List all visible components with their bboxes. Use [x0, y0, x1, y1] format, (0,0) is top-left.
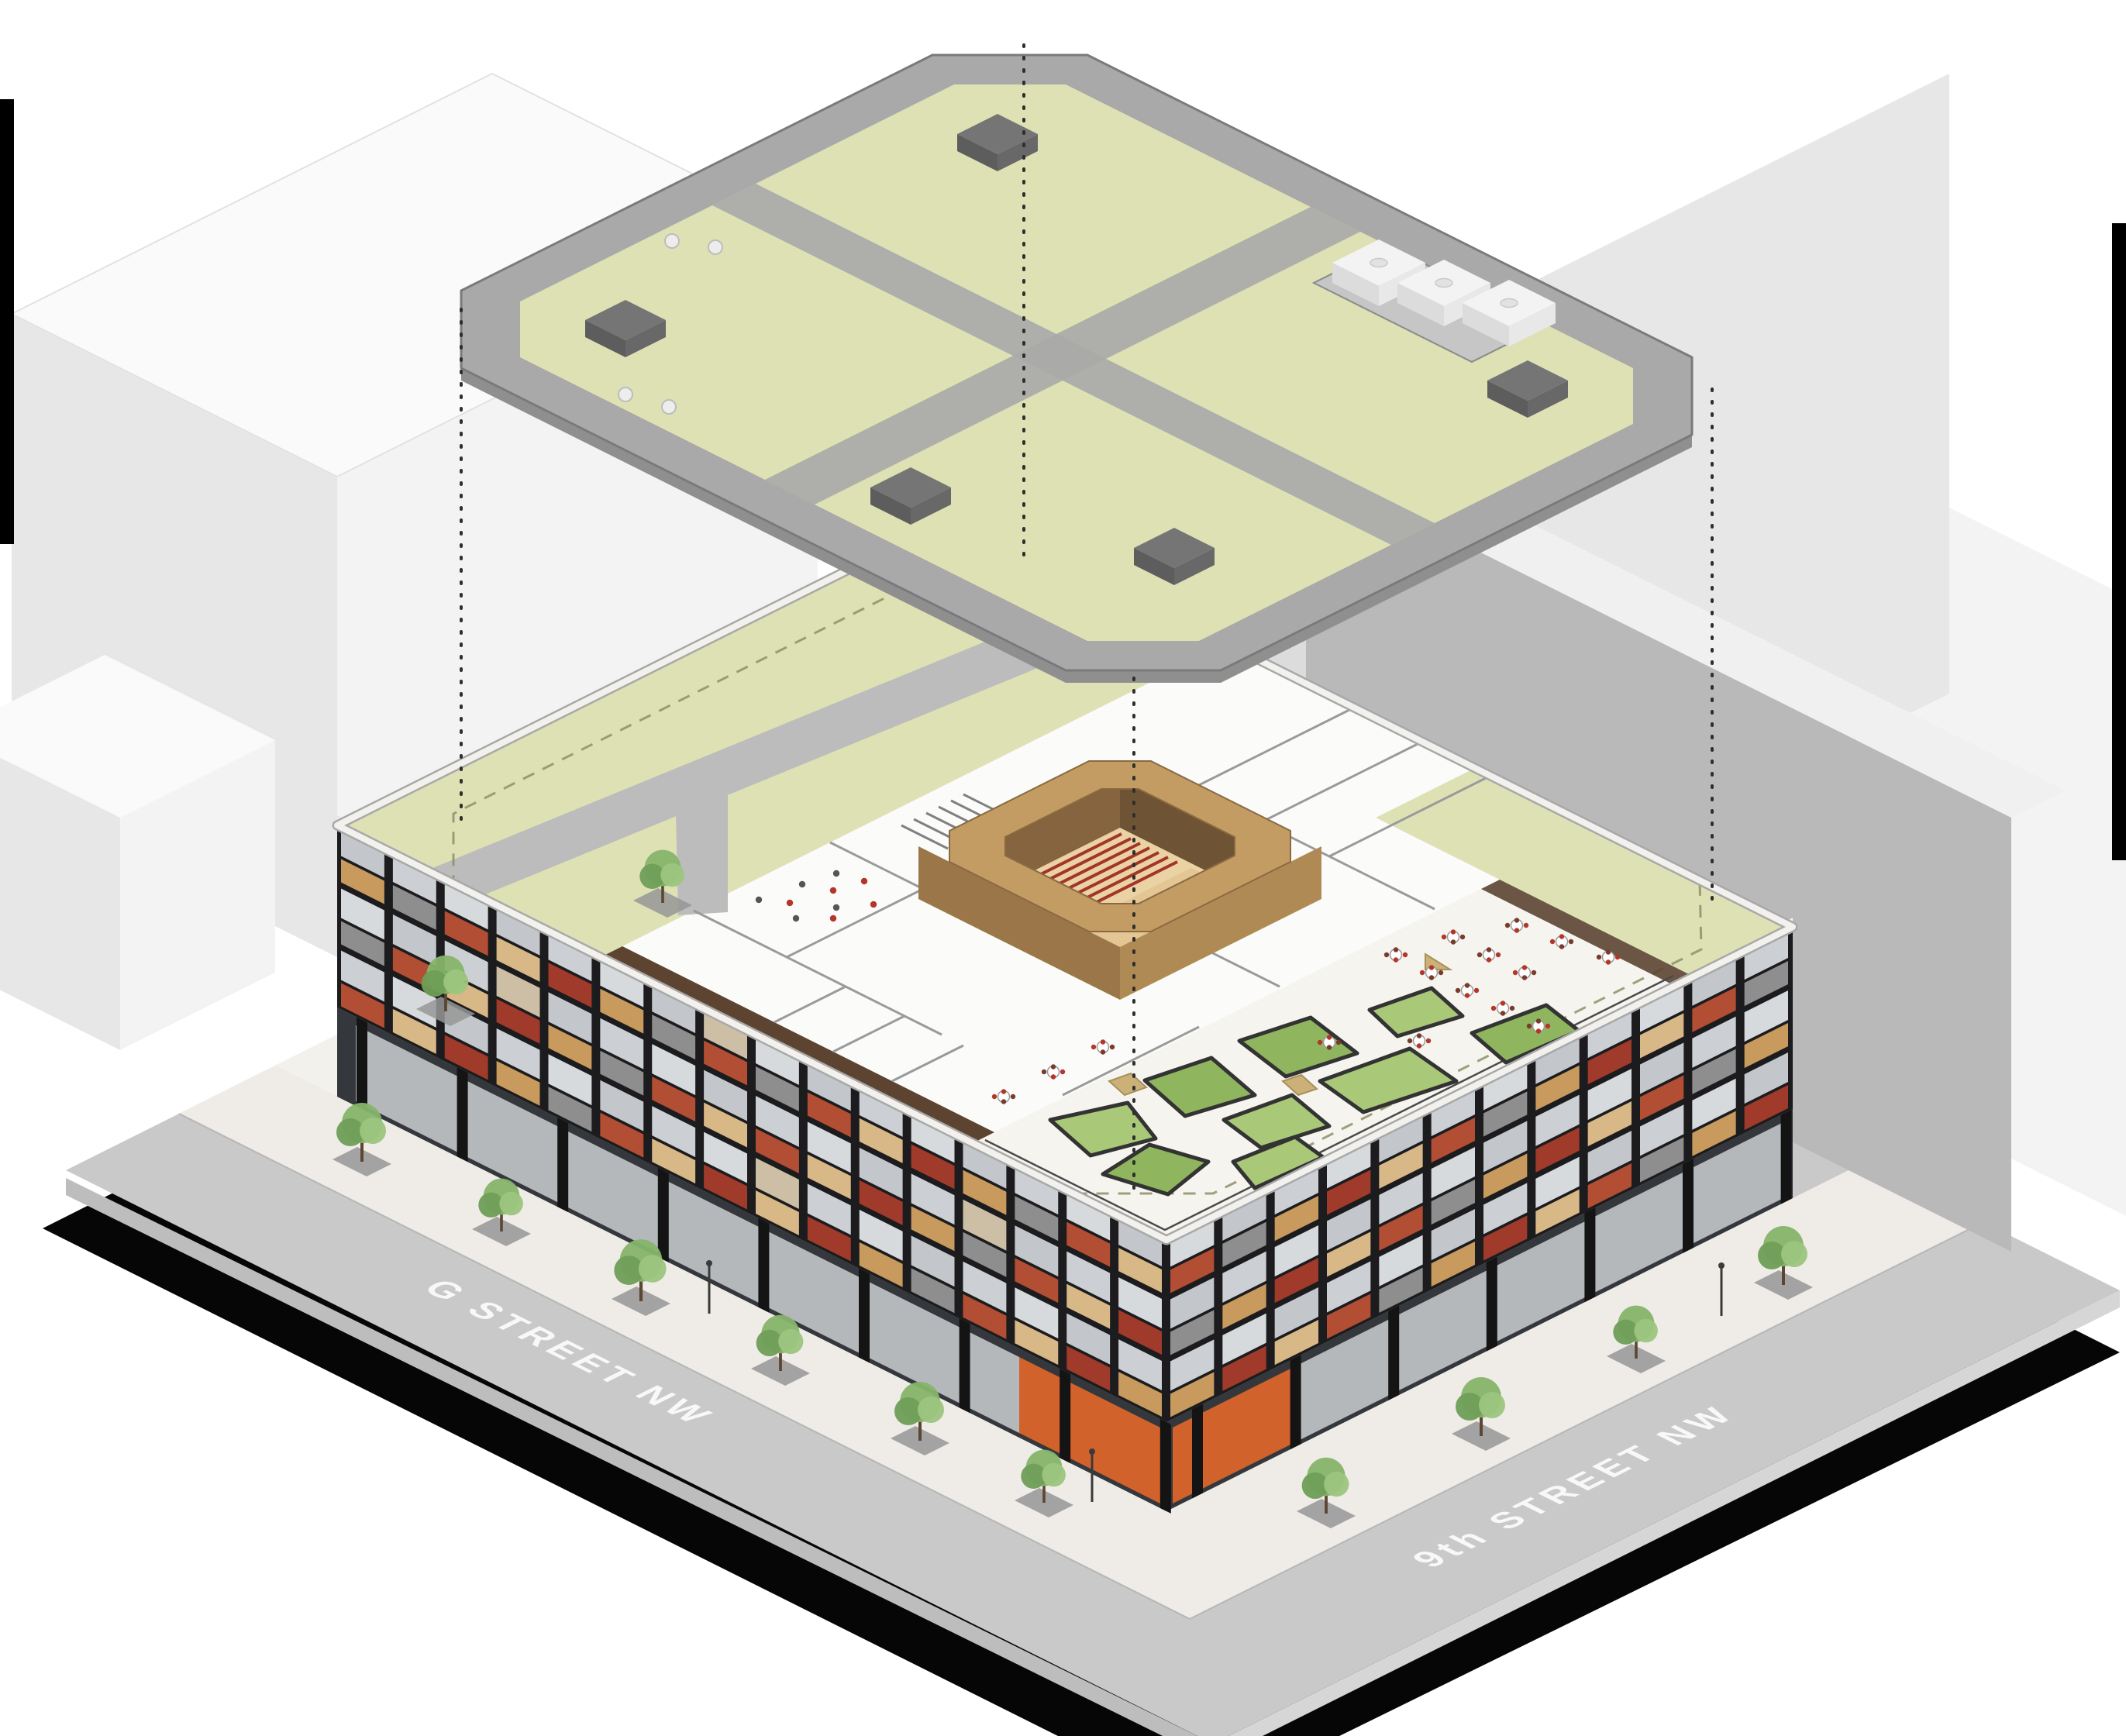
chair-dot [1394, 957, 1398, 962]
chair-dot [1001, 1099, 1006, 1104]
person-dot [830, 887, 836, 894]
chair-dot [1606, 959, 1611, 964]
chair-dot [1091, 1045, 1096, 1049]
person-dot [861, 878, 867, 884]
skylight-circle [665, 234, 679, 248]
skylight-circle [662, 400, 676, 414]
tree-canopy [1324, 1472, 1349, 1497]
pilotis-column [1388, 1306, 1399, 1400]
chair-dot [1477, 952, 1482, 957]
chair-dot [1465, 993, 1470, 997]
tree-canopy [360, 1118, 386, 1144]
tree-canopy [639, 1255, 667, 1283]
chair-dot [1522, 975, 1527, 980]
chair-dot [1417, 1043, 1421, 1048]
lamp-head [706, 1260, 712, 1266]
chair-dot [1060, 1069, 1065, 1074]
chair-dot [1051, 1074, 1056, 1079]
chair-dot [1403, 952, 1408, 957]
chair-dot [1011, 1094, 1015, 1099]
edge-strip-right [2112, 223, 2126, 860]
tree-canopy [1781, 1241, 1807, 1267]
chair-dot [1487, 947, 1491, 952]
person-dot [833, 904, 839, 911]
chair-dot [1442, 935, 1446, 939]
chair-dot [1394, 947, 1398, 952]
pilotis-column [357, 1018, 367, 1112]
chair-dot [1536, 1028, 1541, 1033]
exploded-axonometric-diagram: G STREET NW 9th STREET NW [0, 0, 2126, 1736]
tree-canopy [499, 1192, 523, 1216]
chair-dot [1514, 918, 1519, 922]
chair-dot [1513, 970, 1518, 975]
tree-canopy [778, 1329, 803, 1354]
chair-dot [1597, 955, 1601, 959]
pilotis-column [960, 1318, 970, 1413]
pilotis-column [1584, 1207, 1595, 1302]
chair-dot [1527, 1024, 1532, 1028]
lawn-path-fork [675, 773, 728, 915]
chair-dot [992, 1094, 997, 1099]
person-dot [833, 870, 839, 877]
skylight-circle [619, 387, 632, 401]
pilotis-column [1487, 1257, 1497, 1352]
chair-dot [1451, 929, 1456, 934]
chair-dot [1524, 923, 1528, 928]
chair-dot [1536, 1018, 1541, 1023]
chair-dot [1001, 1089, 1006, 1094]
chair-dot [1474, 988, 1479, 993]
chair-dot [1429, 975, 1434, 980]
skylight-circle [708, 240, 722, 254]
chair-dot [1439, 970, 1443, 975]
pilotis-column [1781, 1110, 1792, 1204]
pilotis-column [457, 1067, 468, 1162]
chair-dot [1451, 939, 1456, 944]
chair-dot [1522, 965, 1527, 970]
chair-dot [1460, 935, 1465, 939]
chair-dot [1417, 1033, 1421, 1038]
person-dot [799, 881, 805, 887]
chair-dot [1532, 970, 1536, 975]
chair-dot [1051, 1064, 1056, 1069]
tree-canopy [918, 1397, 944, 1423]
chair-dot [1545, 1024, 1550, 1028]
pilotis-column [1192, 1404, 1203, 1499]
chair-dot [1559, 934, 1564, 939]
chair-dot [1336, 1040, 1341, 1045]
lamp-head [1089, 1448, 1095, 1455]
chair-dot [1615, 955, 1620, 959]
pilotis-column [1290, 1355, 1301, 1449]
chair-dot [1110, 1045, 1115, 1049]
pilotis-column [658, 1168, 669, 1262]
chair-dot [1042, 1069, 1046, 1074]
person-dot [756, 897, 762, 903]
chair-dot [1514, 928, 1519, 932]
chair-dot [1456, 988, 1460, 993]
chair-dot [1501, 1011, 1505, 1015]
tree-canopy [1042, 1463, 1066, 1487]
lamp-head [1718, 1262, 1725, 1269]
chair-dot [1327, 1035, 1332, 1039]
chair-dot [1426, 1038, 1431, 1043]
cooling-fan [1501, 299, 1518, 308]
edge-strip-left [0, 99, 14, 544]
tree-canopy [660, 863, 684, 887]
pilotis-column [1160, 1419, 1171, 1514]
pilotis-column [859, 1269, 870, 1363]
chair-dot [1501, 1001, 1505, 1005]
chair-dot [1101, 1039, 1105, 1044]
chair-dot [1420, 970, 1425, 975]
chair-dot [1327, 1045, 1332, 1049]
pilotis-column [557, 1118, 568, 1212]
tree-canopy [443, 970, 468, 994]
tree-canopy [1634, 1319, 1658, 1343]
pilotis-column [1683, 1159, 1694, 1253]
chair-dot [1318, 1040, 1322, 1045]
chair-dot [1429, 965, 1434, 970]
chair-dot [1559, 944, 1564, 949]
chair-dot [1496, 952, 1501, 957]
chair-dot [1491, 1006, 1496, 1011]
pilotis-column [1060, 1369, 1070, 1463]
chair-dot [1101, 1049, 1105, 1054]
cooling-fan [1370, 259, 1387, 267]
chair-dot [1505, 923, 1510, 928]
tree-canopy [1479, 1392, 1505, 1418]
chair-dot [1487, 957, 1491, 962]
person-dot [787, 900, 793, 906]
chair-dot [1384, 952, 1389, 957]
chair-dot [1550, 939, 1555, 944]
pilotis-column [758, 1218, 769, 1313]
cooling-fan [1435, 279, 1452, 288]
person-dot [793, 915, 799, 921]
diagram-canvas: G STREET NW 9th STREET NW [0, 0, 2126, 1736]
chair-dot [1606, 949, 1611, 954]
chair-dot [1510, 1006, 1514, 1011]
person-dot [830, 915, 836, 921]
chair-dot [1408, 1038, 1412, 1043]
chair-dot [1465, 983, 1470, 987]
person-dot [870, 901, 877, 908]
chair-dot [1569, 939, 1573, 944]
